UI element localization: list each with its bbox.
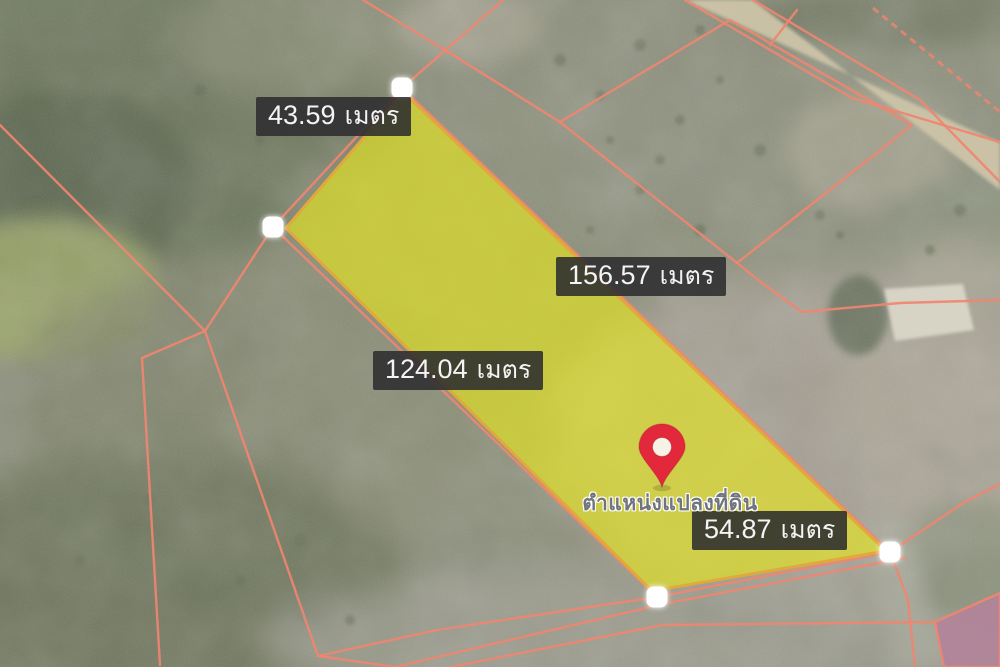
measurement-unit: เมตร — [345, 102, 400, 131]
measurement-label-west: 124.04 เมตร — [373, 351, 543, 390]
parcel-location-caption: ตำแหน่งแปลงที่ดิน — [570, 487, 770, 520]
vertex-handle-south[interactable] — [647, 587, 668, 608]
measurement-label-north: 43.59 เมตร — [256, 97, 411, 136]
vertex-handle-north[interactable] — [392, 78, 413, 99]
measurement-label-east: 156.57 เมตร — [556, 257, 726, 296]
vertex-handle-west[interactable] — [263, 217, 284, 238]
measurement-value: 43.59 — [268, 100, 336, 131]
measurement-unit: เมตร — [477, 356, 532, 385]
satellite-map — [0, 0, 1000, 667]
measurement-unit: เมตร — [660, 262, 715, 291]
measurement-value: 156.57 — [568, 260, 651, 291]
map-canvas[interactable]: 43.59 เมตร 156.57 เมตร 124.04 เมตร 54.87… — [0, 0, 1000, 667]
vertex-handle-east[interactable] — [880, 542, 901, 563]
measurement-unit: เมตร — [781, 516, 836, 545]
measurement-value: 124.04 — [385, 354, 468, 385]
